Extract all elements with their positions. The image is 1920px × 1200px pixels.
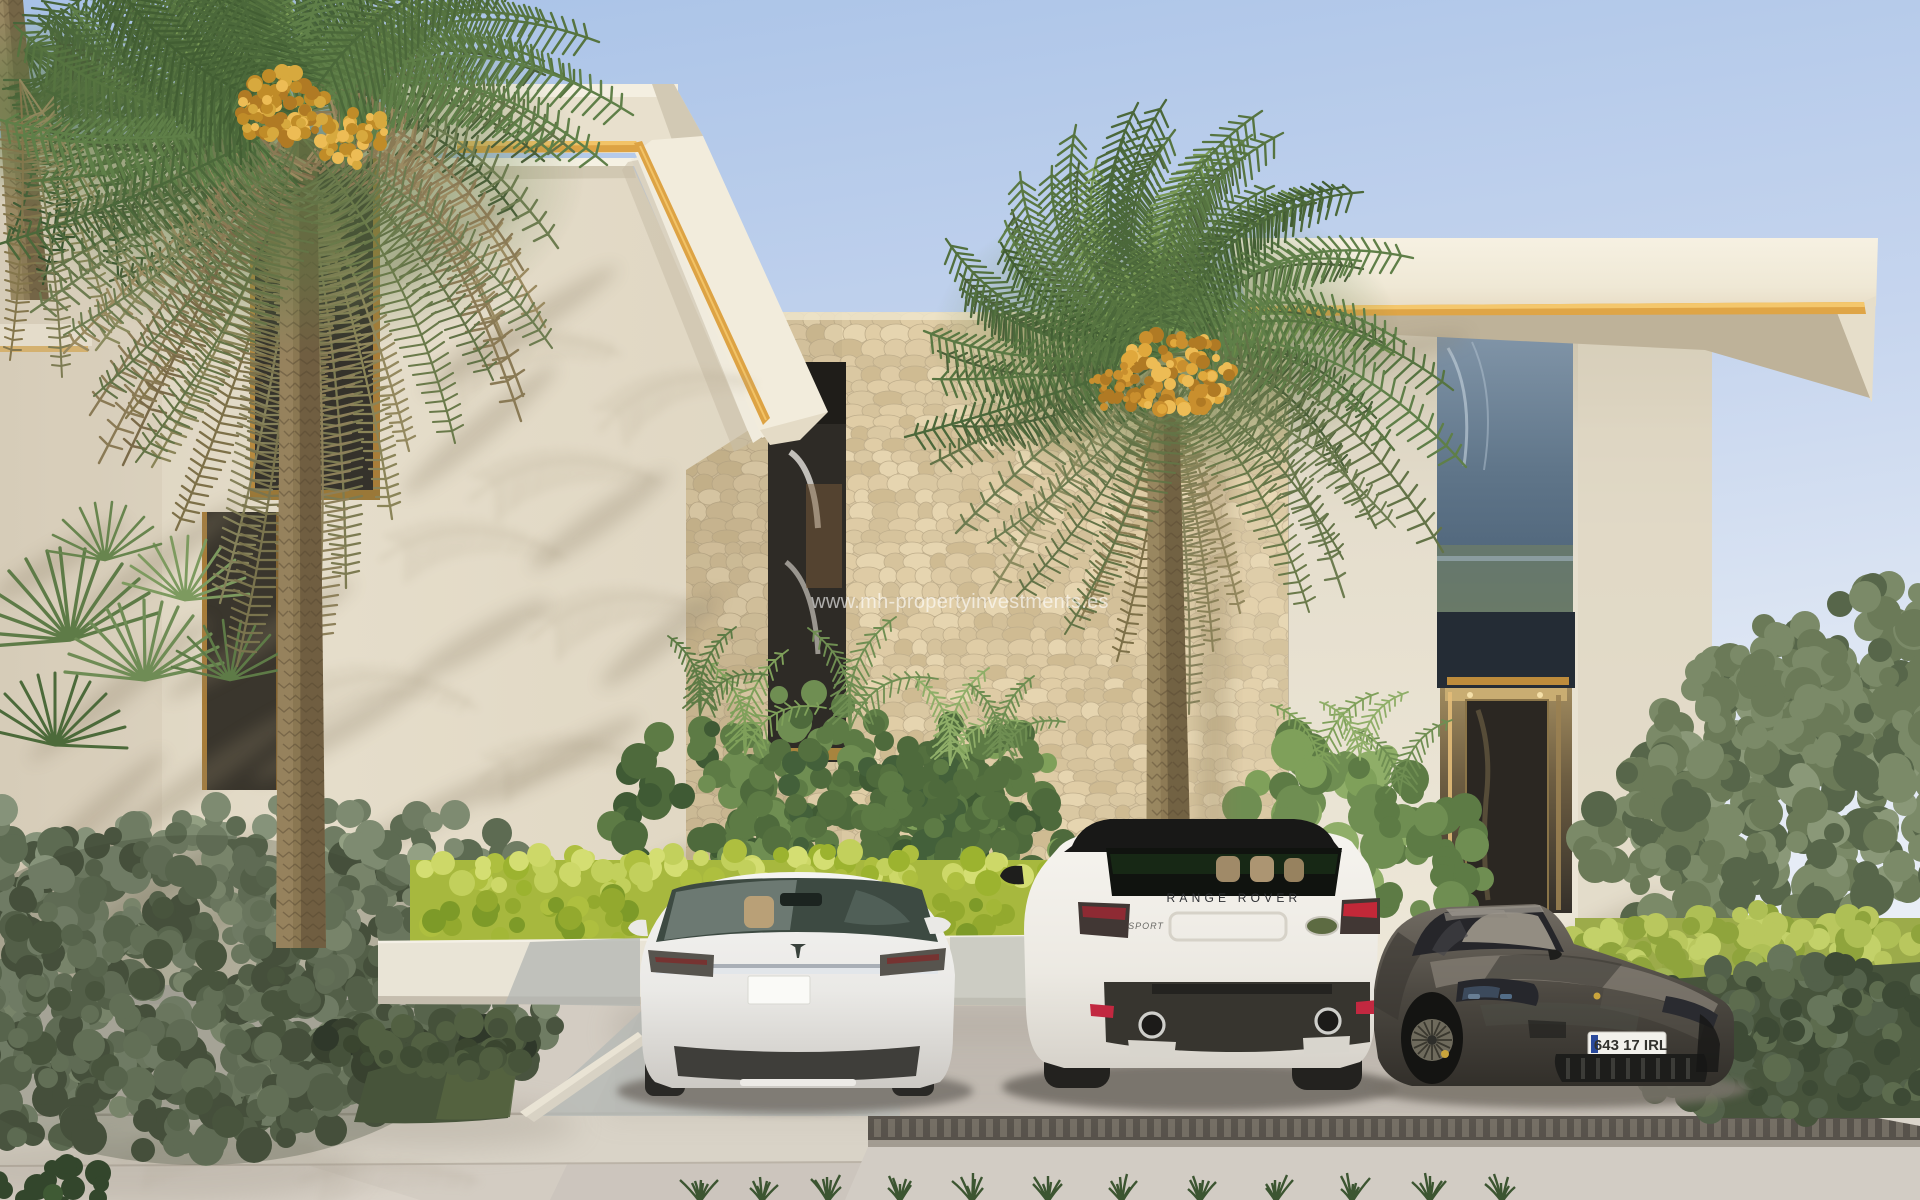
svg-text:SPORT: SPORT — [1128, 921, 1164, 931]
svg-text:643 17 IRL: 643 17 IRL — [1594, 1037, 1668, 1054]
svg-text:www.mh-propertyinvestments.es: www.mh-propertyinvestments.es — [810, 591, 1109, 613]
svg-text:RANGE ROVER: RANGE ROVER — [1167, 891, 1302, 905]
